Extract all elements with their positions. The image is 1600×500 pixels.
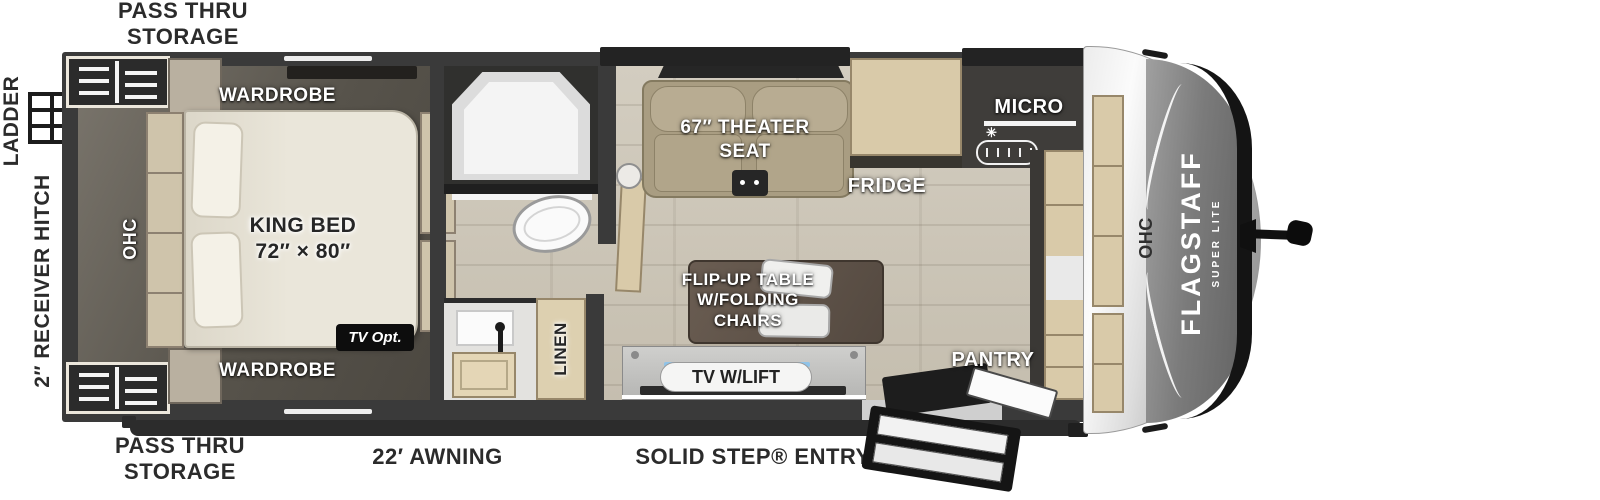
fridge-shadow [850, 156, 962, 168]
label-awning: 22′ AWNING [330, 444, 545, 470]
cabinet-divider [1094, 235, 1122, 237]
marker-light [1142, 49, 1169, 59]
shelf-icon [79, 79, 109, 83]
ladder-icon [28, 92, 66, 144]
shelf-icon [125, 377, 157, 381]
faucet-knob [495, 322, 505, 332]
shower-room [444, 66, 598, 186]
label-ladder: LADDER [0, 66, 22, 176]
label-fridge: FRIDGE [817, 175, 957, 198]
marker-light [1142, 423, 1169, 433]
bathroom-wall-right-lower [586, 294, 604, 400]
label-ohc-bedroom: OHC [120, 204, 140, 274]
front-ohc-cabinet-bottom [1092, 313, 1124, 413]
label-micro: MICRO [969, 96, 1089, 119]
sofa-window [658, 66, 844, 78]
top-wall-slab [962, 48, 1092, 66]
label-king-bed: KING BED 72″ × 80″ [208, 213, 398, 266]
ladder-rung [32, 124, 62, 128]
fridge-cabinet [850, 58, 962, 156]
sparkle-icon: ✳ [986, 126, 1000, 140]
sink-cabinet-inner [460, 360, 508, 390]
label-flip-up-table: FLIP-UP TABLE W/FOLDING CHAIRS [658, 270, 838, 331]
cabinet-divider [148, 172, 182, 174]
label-receiver-hitch: 2″ RECEIVER HITCH [31, 166, 55, 396]
cupholder-dot [754, 180, 759, 185]
front-cap [1083, 46, 1261, 434]
brand-logo: FLAGSTAFF [1176, 108, 1206, 378]
shower-ledge [444, 184, 598, 194]
shelf-icon [79, 385, 109, 389]
pass-thru-cabinet-bottom [66, 362, 170, 414]
cabinet-divider [148, 292, 182, 294]
sink-cabinet [452, 352, 516, 398]
pillow [190, 121, 243, 219]
shelf-icon [125, 83, 157, 87]
shelf-icon [125, 95, 157, 99]
ceiling-vent [287, 66, 417, 79]
bedroom-window-top [284, 56, 372, 61]
console-screw [850, 351, 858, 359]
label-linen: LINEN [551, 304, 571, 394]
label-pass-thru-storage-top: PASS THRU STORAGE [58, 0, 308, 50]
console-baseboard [622, 395, 866, 399]
hitch-jack-knob [1285, 219, 1314, 248]
label-pass-thru-storage-bottom: PASS THRU STORAGE [55, 433, 305, 485]
awning-rail-notch [122, 416, 136, 428]
headboard-cabinets [146, 112, 184, 348]
bedroom-window-bottom [284, 409, 372, 414]
shelf-icon [125, 401, 157, 405]
shelf-icon [125, 71, 157, 75]
cabinet-divider [1094, 363, 1122, 365]
toilet-lid [520, 200, 585, 247]
shelf-divider [115, 367, 119, 409]
bathroom-wall-right [598, 66, 616, 244]
front-ohc-cabinet-top [1092, 95, 1124, 307]
side-table [616, 163, 642, 189]
shelf-icon [79, 397, 109, 401]
top-wall-slab [600, 47, 850, 66]
console-screw [631, 351, 639, 359]
label-theater-seat: 67″ THEATER SEAT [650, 116, 840, 164]
ladder-rail [50, 96, 54, 140]
vanity-mirror [456, 310, 514, 346]
floorplan-canvas: PASS THRU STORAGE LADDER 2″ RECEIVER HIT… [0, 0, 1600, 500]
label-wardrobe-top: WARDROBE [190, 85, 365, 107]
cupholder-dot [740, 180, 745, 185]
label-wardrobe-bottom: WARDROBE [190, 360, 365, 382]
ladder-rung [32, 108, 62, 112]
cabinet-divider [1094, 165, 1122, 167]
shower-pan [464, 82, 578, 174]
stove-icon [976, 140, 1038, 165]
label-solid-step-entry: SOLID STEP® ENTRY [628, 444, 878, 470]
pass-thru-cabinet-top [66, 56, 170, 108]
shelf-icon [125, 389, 157, 393]
shelf-icon [79, 373, 109, 377]
cupholder-icon [732, 170, 768, 196]
tv-lift-badge: TV W/LIFT [660, 362, 812, 392]
label-pantry: PANTRY [913, 349, 1073, 372]
label-ohc-front: OHC [1136, 203, 1156, 273]
tv-opt-badge: TV Opt. [336, 324, 414, 351]
shelf-icon [79, 91, 109, 95]
brand-series: SUPER LITE [1211, 158, 1225, 328]
hitch-jack-stem [1252, 229, 1290, 239]
shelf-divider [115, 61, 119, 103]
shelf-icon [79, 67, 109, 71]
cabinet-divider [148, 232, 182, 234]
stove-grate [986, 148, 1032, 157]
